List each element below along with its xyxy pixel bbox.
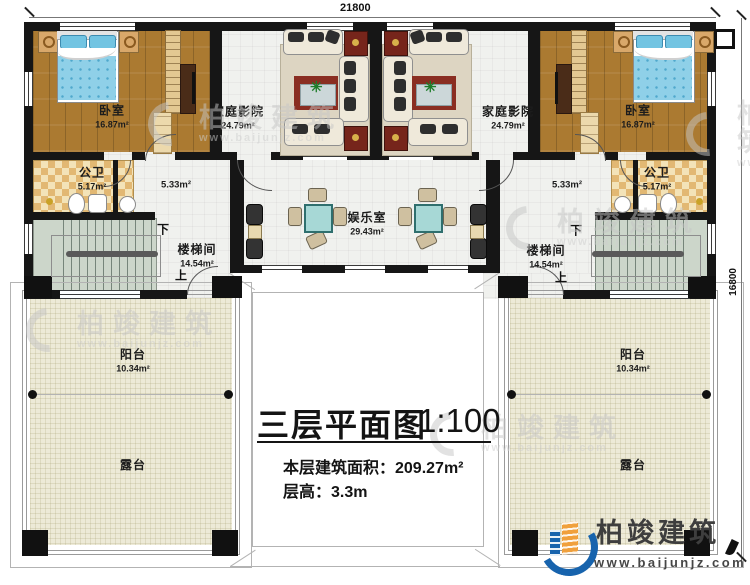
bed-duvet — [634, 56, 692, 100]
room-name: 卧室 — [95, 103, 129, 119]
sofa-cushion — [344, 97, 356, 111]
watermark-url: www.baijunjz.com — [481, 442, 625, 454]
column-dot — [507, 390, 516, 399]
chair — [443, 207, 457, 226]
watermark-name: 柏竣建筑 — [481, 414, 625, 442]
sofa-cushion — [442, 124, 458, 134]
chair — [418, 188, 437, 202]
room-name: 娱乐室 — [347, 210, 386, 226]
window — [707, 224, 716, 254]
room-name: 卧室 — [621, 103, 655, 119]
lounge-chair — [246, 238, 263, 259]
chair — [398, 207, 412, 226]
room-area: 10.34m² — [116, 363, 150, 375]
emblem-icon — [352, 39, 359, 46]
watermark-logo-icon — [497, 197, 559, 259]
dimension-tick — [710, 7, 721, 18]
side-table — [248, 225, 262, 239]
room-area: 16.87m² — [621, 119, 655, 131]
plan-scale: 1:100 — [418, 402, 501, 440]
sofa-cushion — [394, 61, 406, 75]
bed-duvet — [58, 56, 116, 100]
tv-cabinet — [556, 64, 572, 114]
watermark: 柏竣建筑 www.baijunjz.com — [26, 308, 221, 352]
tv-screen — [192, 72, 195, 104]
room-area: 29.43m² — [347, 226, 386, 238]
wall-seg — [526, 152, 575, 160]
sofa-cushion — [394, 79, 406, 93]
lounge-chair — [246, 204, 263, 225]
room-label-theater-right: 家庭影院 24.79m² — [482, 104, 534, 131]
floor-plan-canvas: ✳ ✳ 卧室 16.87m² 家庭影院 24.79m² — [0, 0, 750, 585]
window — [24, 72, 33, 106]
emblem-icon — [392, 134, 399, 141]
room-name: 露台 — [620, 458, 646, 474]
watermark-url: www.baijunjz.com — [737, 157, 750, 169]
lounge-chair — [470, 204, 487, 225]
sofa-cushion — [446, 32, 462, 42]
wall-left — [24, 22, 33, 299]
center-void-bottom-line — [230, 566, 500, 567]
sofa-cushion — [344, 61, 356, 75]
watermark-name: 柏竣建筑 — [77, 310, 221, 338]
brand-logo-block: 柏竣建筑 www.baijunjz.com — [538, 516, 743, 576]
stair-left-guide — [51, 235, 161, 277]
chair — [288, 207, 302, 226]
wall-seg — [563, 290, 610, 299]
lounge-chair — [470, 238, 487, 259]
window — [610, 290, 690, 299]
sofa-cushion — [394, 97, 406, 111]
game-table — [414, 204, 443, 233]
watermark-name: 柏竣建筑 — [737, 100, 750, 157]
room-name: 公卫 — [78, 165, 107, 181]
room-label-bedroom-right: 卧室 16.87m² — [621, 103, 655, 130]
sofa-cushion — [426, 32, 442, 42]
room-label-game-room: 娱乐室 29.43m² — [347, 210, 386, 237]
room-area: 16.87m² — [95, 119, 129, 131]
lamp-icon — [699, 36, 711, 48]
corner-column — [22, 530, 48, 556]
wall-seg — [222, 152, 237, 160]
room-label-bath-left: 公卫 5.17m² — [78, 165, 107, 192]
corner-column — [212, 530, 238, 556]
chair — [308, 188, 327, 202]
plant-icon: ✳ — [424, 78, 437, 96]
balcony-terrace-divider-left — [30, 394, 232, 395]
corner-column — [498, 276, 528, 298]
brand-building-orange-icon — [562, 521, 578, 555]
wall-seg — [605, 152, 618, 160]
light-fixture-icon — [46, 198, 53, 205]
room-name: 阳台 — [616, 347, 650, 363]
column-dot — [28, 390, 37, 399]
wall-seg — [140, 290, 187, 299]
lamp-icon — [618, 36, 630, 48]
watermark-logo-icon — [139, 93, 201, 155]
hall-left-area-label: 5.33m² — [161, 180, 191, 191]
column-dot — [702, 390, 711, 399]
watermark-name: 柏竣建筑 — [557, 208, 701, 236]
room-name: 公卫 — [643, 165, 672, 181]
watermark: 柏竣建筑 www.baijunjz.com — [686, 100, 750, 169]
side-table — [470, 225, 484, 239]
dimension-line-top — [29, 17, 716, 18]
chimney-box — [714, 29, 735, 49]
light-fixture-icon — [696, 198, 703, 205]
plan-title: 三层平面图 — [257, 400, 427, 446]
sofa — [408, 118, 468, 146]
dimension-right-value: 16800 — [728, 268, 739, 296]
emblem-icon — [352, 134, 359, 141]
window — [615, 22, 690, 31]
sofa-cushion — [288, 32, 304, 42]
window — [345, 265, 385, 273]
column-dot — [224, 390, 233, 399]
floor-height-line: 层高：3.3m — [283, 478, 367, 502]
stair-left-down-label: 下 — [157, 221, 169, 238]
room-area: 5.17m² — [78, 181, 107, 193]
void-corner-diagonal — [475, 549, 501, 566]
window — [60, 22, 135, 31]
watermark-logo-icon — [677, 103, 739, 165]
dimension-top-value: 21800 — [340, 2, 371, 14]
hall-right-area-label: 5.33m² — [552, 180, 582, 191]
brand-name: 柏竣建筑 — [596, 520, 720, 547]
room-label-balcony-right: 阳台 10.34m² — [616, 347, 650, 374]
basin-icon — [119, 196, 136, 213]
stair-left-up-label: 上 — [175, 267, 187, 284]
wall-seg — [24, 152, 104, 160]
watermark-url: www.baijunjz.com — [77, 338, 221, 350]
dimension-tick — [24, 7, 35, 18]
sofa-cushion — [308, 32, 324, 42]
watermark: 柏竣建筑 www.baijunjz.com — [506, 206, 701, 250]
wall-seg — [132, 152, 145, 160]
brand-url: www.baijunjz.com — [594, 554, 746, 572]
wall-bath-left-south — [24, 212, 155, 220]
room-label-bedroom-left: 卧室 16.87m² — [95, 103, 129, 130]
window — [24, 224, 33, 254]
emblem-icon — [392, 39, 399, 46]
stair-right-up-label: 上 — [555, 269, 567, 286]
room-area: 10.34m² — [616, 363, 650, 375]
room-area: 24.79m² — [482, 120, 534, 132]
sofa-cushion — [420, 124, 436, 134]
room-name: 楼梯间 — [177, 242, 216, 258]
pillow — [60, 35, 87, 49]
floor-area-line: 本层建筑面积：209.27m² — [283, 454, 464, 478]
corner-column — [688, 276, 716, 298]
chair — [333, 207, 347, 226]
sofa-cushion — [344, 79, 356, 93]
room-name: 露台 — [120, 458, 146, 474]
lamp-icon — [124, 36, 136, 48]
watermark: 柏竣建筑 www.baijunjz.com — [148, 102, 343, 146]
pillow — [636, 35, 663, 49]
window — [428, 265, 468, 273]
wall-bedroom-right-west — [528, 22, 540, 152]
corner-column — [24, 276, 52, 298]
title-underline — [257, 441, 491, 443]
room-label-terrace-left: 露台 — [120, 458, 146, 474]
watermark-url: www.baijunjz.com — [199, 132, 343, 144]
room-name: 家庭影院 — [482, 104, 534, 120]
room-area: 5.17m² — [643, 181, 672, 193]
watermark-logo-icon — [17, 299, 79, 361]
tv-screen — [555, 72, 558, 104]
game-table — [304, 204, 333, 233]
plant-icon: ✳ — [310, 78, 323, 96]
window — [262, 265, 302, 273]
wall-seg — [513, 152, 528, 160]
wall-seg — [175, 152, 222, 160]
room-label-bath-right: 公卫 5.17m² — [643, 165, 672, 192]
pillow — [665, 35, 692, 49]
window — [60, 290, 140, 299]
room-label-terrace-right: 露台 — [620, 458, 646, 474]
sink-icon — [88, 194, 107, 213]
balcony-terrace-divider-right — [510, 394, 710, 395]
toilet-icon — [68, 193, 85, 214]
corner-column — [512, 530, 538, 556]
pillow — [89, 35, 116, 49]
brand-building-blue-icon — [550, 530, 560, 556]
watermark-name: 柏竣建筑 — [199, 104, 343, 132]
lamp-icon — [43, 36, 55, 48]
watermark-url: www.baijunjz.com — [557, 236, 701, 248]
wardrobe-right — [571, 30, 587, 114]
